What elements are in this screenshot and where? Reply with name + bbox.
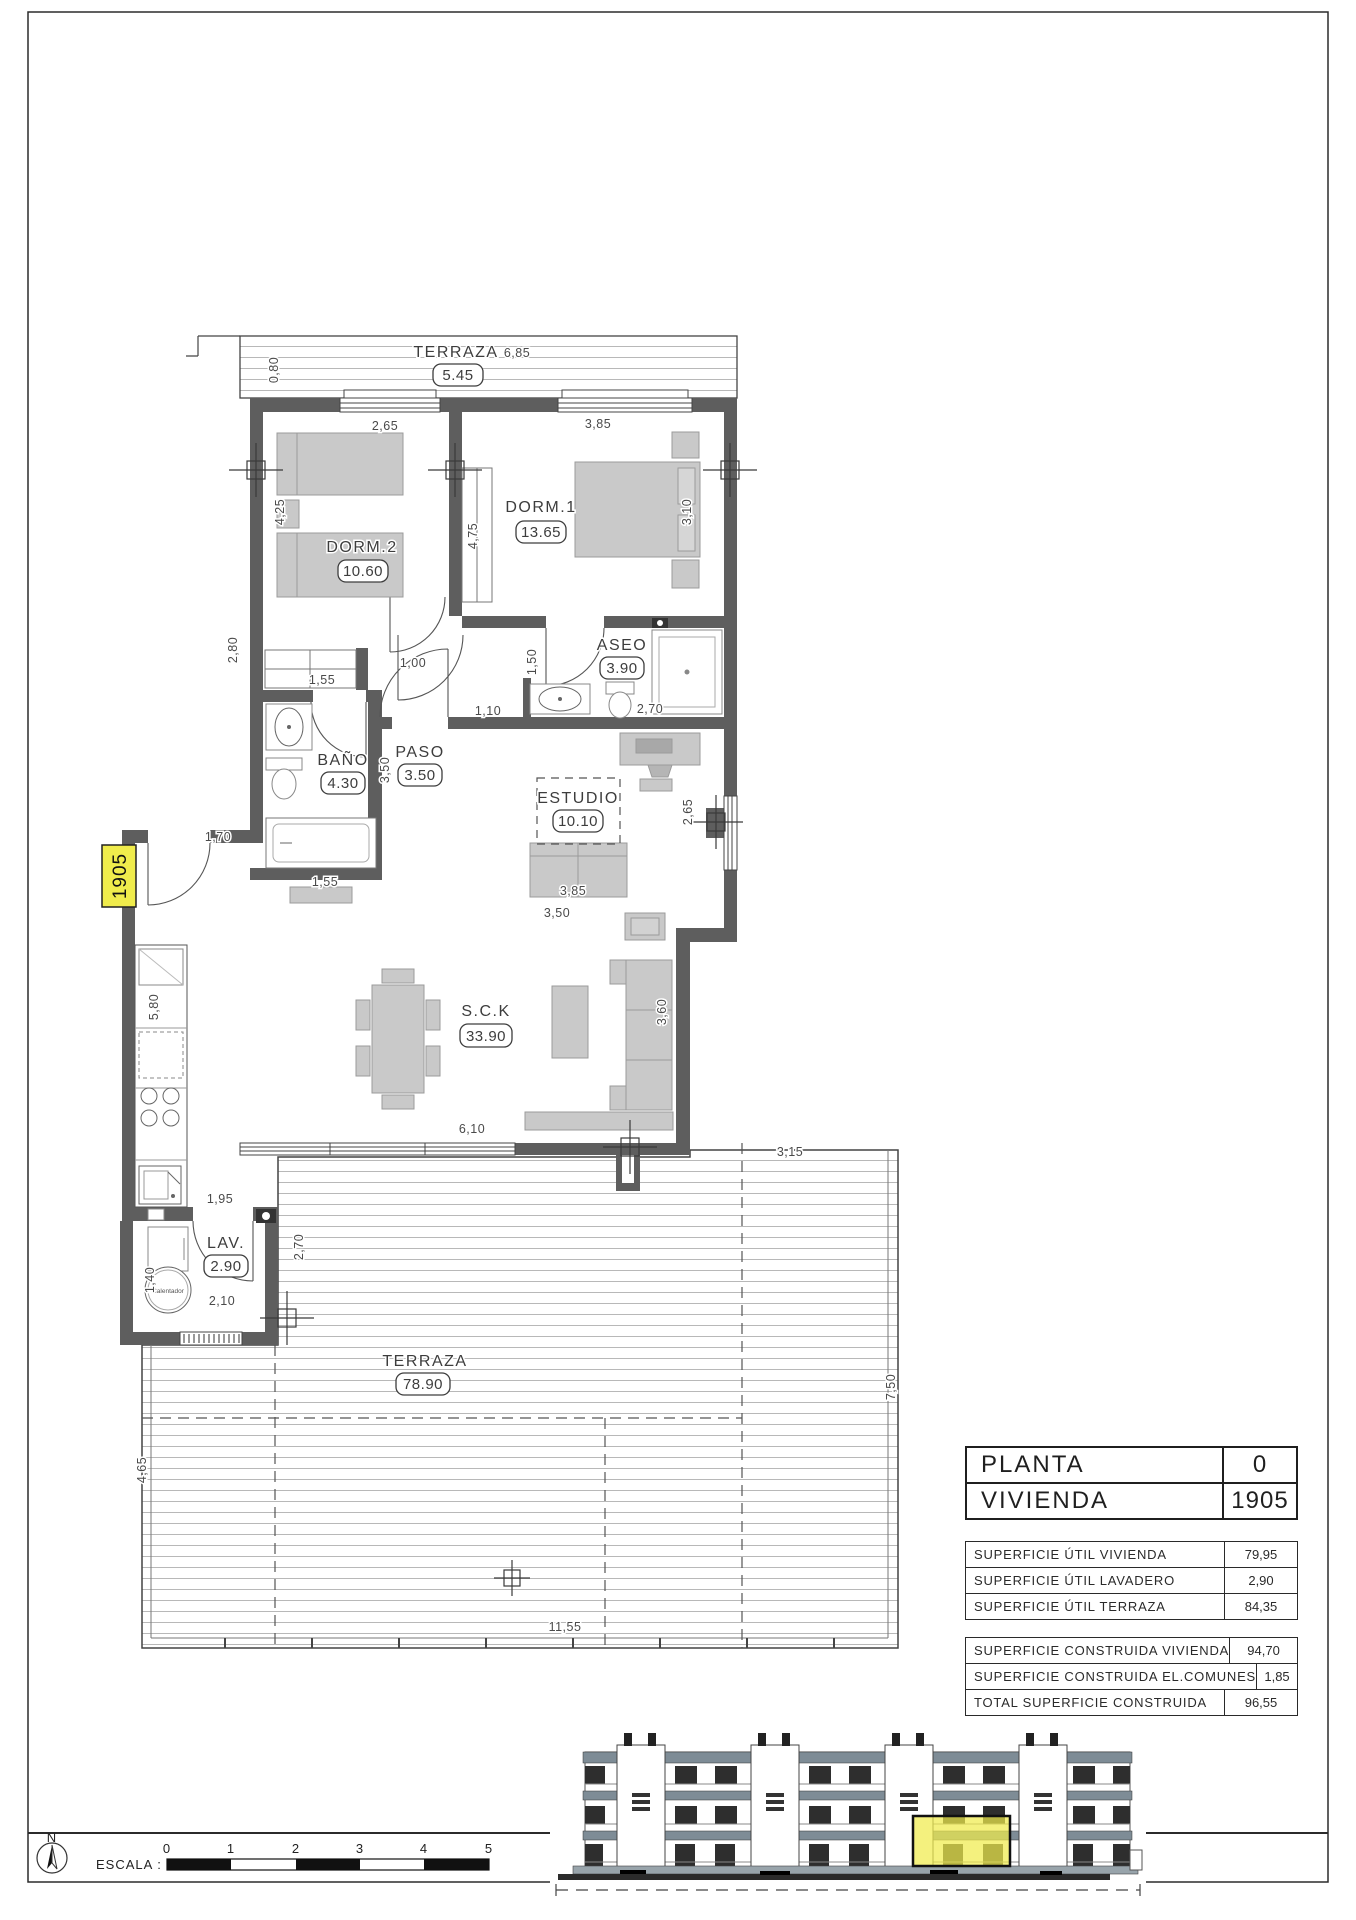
dim: 1,10 xyxy=(475,704,501,718)
room-area-paso: 3.50 xyxy=(404,767,435,784)
table-row: SUPERFICIE ÚTIL TERRAZA 84,35 xyxy=(966,1594,1297,1619)
scale-label: ESCALA : xyxy=(96,1857,162,1872)
table-row: SUPERFICIE CONSTRUIDA VIVIENDA 94,70 xyxy=(966,1638,1297,1664)
scale-tick: 2 xyxy=(292,1841,300,1856)
table-row: SUPERFICIE ÚTIL VIVIENDA 79,95 xyxy=(966,1542,1297,1568)
room-area-dorm2: 10.60 xyxy=(343,563,383,580)
row-value: 94,70 xyxy=(1229,1638,1297,1663)
room-area-terraza-top: 5.45 xyxy=(442,367,473,384)
table-row: TOTAL SUPERFICIE CONSTRUIDA 96,55 xyxy=(966,1690,1297,1715)
dim: 3,10 xyxy=(680,499,694,525)
room-name-dorm1: DORM.1 xyxy=(505,499,576,516)
dim: 4,25 xyxy=(273,499,287,525)
scale-tick: 4 xyxy=(420,1841,428,1856)
row-value: 1,85 xyxy=(1256,1664,1297,1689)
planta-value: 0 xyxy=(1222,1448,1296,1482)
surface-table-construida: SUPERFICIE CONSTRUIDA VIVIENDA 94,70 SUP… xyxy=(965,1637,1298,1716)
room-area-bano: 4.30 xyxy=(327,775,358,792)
title-block-row-vivienda: VIVIENDA 1905 xyxy=(967,1484,1296,1518)
row-value: 2,90 xyxy=(1224,1568,1297,1593)
dim: 11,55 xyxy=(549,1620,582,1634)
row-label: SUPERFICIE ÚTIL TERRAZA xyxy=(966,1594,1224,1619)
dim: 1,70 xyxy=(205,830,231,844)
dim: 3,50 xyxy=(544,906,570,920)
room-name-paso: PASO xyxy=(395,744,444,761)
dim: 1,50 xyxy=(525,649,539,675)
dim: 1,40 xyxy=(143,1267,157,1293)
kitchen xyxy=(135,945,187,1207)
unit-tag: 1905 xyxy=(102,845,136,907)
title-block: PLANTA 0 VIVIENDA 1905 xyxy=(965,1446,1298,1520)
drain-detail xyxy=(622,1155,634,1183)
planta-label: PLANTA xyxy=(967,1448,1222,1482)
dim: 2,70 xyxy=(292,1234,306,1260)
floor-plan-drawing: 1905 TERRAZA 5.45 DORM.2 10.60 DORM.1 13… xyxy=(0,0,1356,1920)
highlighted-unit xyxy=(913,1816,1010,1866)
dim: 7,50 xyxy=(884,1374,898,1400)
title-block-row-planta: PLANTA 0 xyxy=(967,1448,1296,1484)
dim: 0,80 xyxy=(267,357,281,383)
dim: 6,85 xyxy=(504,346,530,360)
room-name-terraza-main: TERRAZA xyxy=(382,1353,467,1370)
room-name-dorm2: DORM.2 xyxy=(326,539,397,556)
scale-tick: 1 xyxy=(227,1841,235,1856)
table-row: SUPERFICIE ÚTIL LAVADERO 2,90 xyxy=(966,1568,1297,1594)
row-value: 84,35 xyxy=(1224,1594,1297,1619)
scale-bar: ESCALA : 0 1 2 3 4 5 xyxy=(96,1841,493,1872)
row-value: 79,95 xyxy=(1224,1542,1297,1567)
dim: 2,70 xyxy=(637,702,663,716)
surface-table-util: SUPERFICIE ÚTIL VIVIENDA 79,95 SUPERFICI… xyxy=(965,1541,1298,1620)
dim: 3,85 xyxy=(585,417,611,431)
room-name-terraza-top: TERRAZA xyxy=(413,344,498,361)
building-elevation xyxy=(550,1733,1146,1896)
dim: 3,60 xyxy=(655,999,669,1025)
room-area-dorm1: 13.65 xyxy=(521,524,561,541)
dim: 2,65 xyxy=(681,799,695,825)
room-name-bano: BAÑO xyxy=(317,749,368,769)
dim: 6,10 xyxy=(459,1122,485,1136)
furniture-sck xyxy=(356,960,673,1130)
room-area-lav: 2.90 xyxy=(210,1258,241,1275)
furniture-dorm1 xyxy=(462,432,700,602)
vivienda-value: 1905 xyxy=(1222,1484,1296,1518)
row-label: SUPERFICIE CONSTRUIDA VIVIENDA xyxy=(966,1638,1229,1663)
dim: 5,80 xyxy=(147,994,161,1020)
scale-tick: 0 xyxy=(163,1841,171,1856)
unit-tag-label: 1905 xyxy=(110,853,131,899)
dim: 1,55 xyxy=(309,673,335,687)
room-name-aseo: ASEO xyxy=(597,637,647,654)
stair-tower xyxy=(617,1733,665,1868)
dim: 3,85 xyxy=(560,884,586,898)
scale-tick: 3 xyxy=(356,1841,364,1856)
floor-plan-sheet: 1905 TERRAZA 5.45 DORM.2 10.60 DORM.1 13… xyxy=(0,0,1356,1920)
room-name-estudio: ESTUDIO xyxy=(537,790,619,807)
room-name-lav: LAV. xyxy=(207,1235,245,1252)
row-label: SUPERFICIE ÚTIL VIVIENDA xyxy=(966,1542,1224,1567)
dim: 2,80 xyxy=(226,637,240,663)
dim: 1,55 xyxy=(312,875,338,889)
row-label: SUPERFICIE CONSTRUIDA EL.COMUNES xyxy=(966,1664,1256,1689)
dim: 3,15 xyxy=(777,1145,803,1159)
dim: 3,50 xyxy=(378,757,392,783)
dim: 4,75 xyxy=(466,523,480,549)
room-area-sck: 33.90 xyxy=(466,1028,506,1045)
row-label: TOTAL SUPERFICIE CONSTRUIDA xyxy=(966,1690,1224,1715)
scale-tick: 5 xyxy=(485,1841,493,1856)
room-area-estudio: 10.10 xyxy=(558,813,598,830)
dim: 1,95 xyxy=(207,1192,233,1206)
dim: 1,00 xyxy=(400,656,426,670)
room-name-sck: S.C.K xyxy=(461,1003,510,1020)
room-area-aseo: 3.90 xyxy=(606,660,637,677)
room-area-terraza-main: 78.90 xyxy=(403,1376,443,1393)
row-value: 96,55 xyxy=(1224,1690,1297,1715)
dim: 4,65 xyxy=(135,1457,149,1483)
dim: 2,10 xyxy=(209,1294,235,1308)
table-row: SUPERFICIE CONSTRUIDA EL.COMUNES 1,85 xyxy=(966,1664,1297,1690)
dim: 2,65 xyxy=(372,419,398,433)
row-label: SUPERFICIE ÚTIL LAVADERO xyxy=(966,1568,1224,1593)
vivienda-label: VIVIENDA xyxy=(967,1484,1222,1518)
north-arrow-icon: N xyxy=(37,1830,67,1873)
